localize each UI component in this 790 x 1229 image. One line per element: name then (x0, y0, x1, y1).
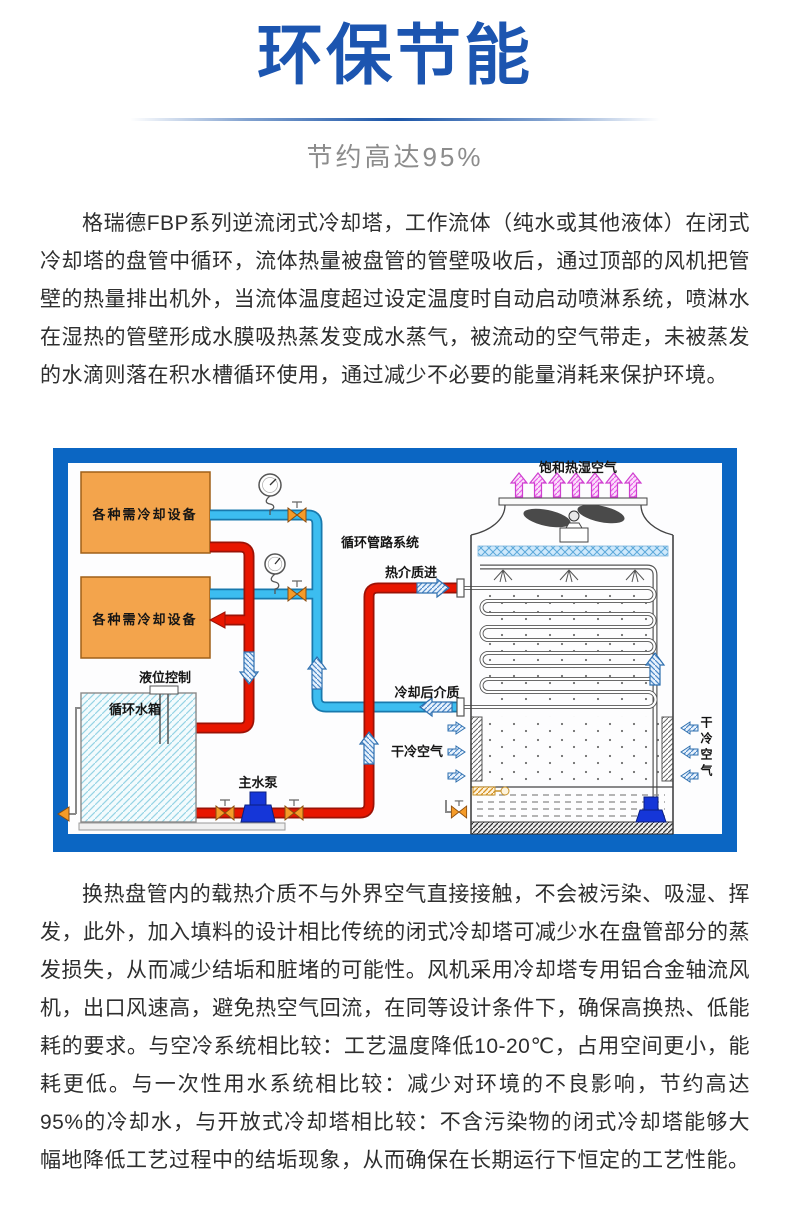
louver-right (662, 717, 673, 781)
level-control-label: 液位控制 (139, 670, 191, 685)
paragraph-intro: 格瑞德FBP系列逆流闭式冷却塔，工作流体（纯水或其他液体）在闭式冷却塔的盘管中循… (40, 205, 750, 395)
paragraph-details: 换热盘管内的载热介质不与外界空气直接接触，不会被污染、吸湿、挥发，此外，加入填料… (40, 876, 750, 1180)
cooling-system-diagram: 各种需冷却设备 各种需冷却设备 液位控制 循环水箱 主水泵 循环管路系统 热介质… (53, 448, 737, 852)
fan-motor (560, 528, 588, 542)
inlet-flange (457, 579, 464, 597)
dry-air-label-left: 干冷空气 (391, 744, 443, 759)
diagram-svg: 各种需冷却设备 各种需冷却设备 液位控制 循环水箱 主水泵 循环管路系统 热介质… (53, 448, 737, 852)
coil-spray-dots (485, 593, 657, 703)
equipment-label-2: 各种需冷却设备 (91, 612, 197, 627)
pipe-system-label: 循环管路系统 (341, 535, 419, 550)
main-pump-label: 主水泵 (238, 775, 277, 790)
float-ball (501, 787, 509, 795)
dry-air-label-right: 干冷空气 (698, 716, 715, 780)
equipment-label-1: 各种需冷却设备 (91, 507, 197, 522)
fan-motor-top (566, 523, 582, 528)
hot-medium-label: 热介质进 (385, 565, 437, 580)
page-subtitle: 节约高达95% (0, 137, 790, 174)
title-divider (130, 118, 660, 121)
outlet-flange (457, 698, 464, 716)
level-control-bracket (150, 686, 178, 694)
tower-base (471, 822, 673, 834)
cooled-medium-label: 冷却后介质 (394, 685, 459, 700)
saturated-air-label: 饱和热湿空气 (538, 460, 617, 475)
water-tank-label: 循环水箱 (109, 702, 161, 717)
fan-deck (499, 498, 647, 505)
fill-section-dots (483, 716, 659, 784)
float-valve (473, 787, 495, 795)
drift-eliminator (478, 546, 668, 556)
page: 环保节能 节约高达95% 格瑞德FBP系列逆流闭式冷却塔，工作流体（纯水或其他液… (0, 0, 790, 1229)
louver-left (471, 717, 482, 781)
page-title: 环保节能 (0, 16, 790, 94)
